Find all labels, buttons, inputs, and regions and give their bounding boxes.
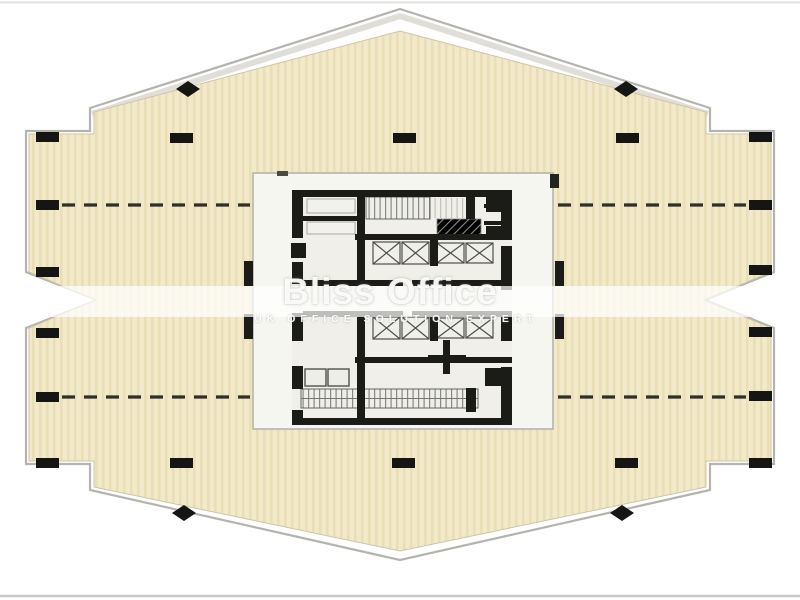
column-marker bbox=[36, 392, 59, 402]
staircase-top bbox=[366, 197, 430, 219]
elevator-shaft bbox=[373, 242, 400, 264]
column-marker bbox=[749, 200, 772, 210]
elevator-shaft bbox=[373, 317, 400, 339]
elevator-shaft bbox=[466, 243, 493, 263]
floorplan-drawing bbox=[0, 0, 800, 600]
column-marker bbox=[393, 133, 416, 143]
core-tick bbox=[550, 174, 559, 188]
elevator-shaft bbox=[466, 318, 493, 338]
elevator-shaft bbox=[402, 317, 429, 339]
column-marker bbox=[170, 458, 193, 468]
staircase-top-extension bbox=[432, 198, 466, 218]
column-marker bbox=[615, 458, 638, 468]
column-marker bbox=[36, 328, 59, 338]
column-marker bbox=[749, 327, 772, 337]
column-marker bbox=[749, 391, 772, 401]
watermark-band bbox=[0, 286, 800, 317]
column-marker bbox=[749, 265, 772, 275]
column-marker bbox=[616, 133, 639, 143]
column-marker bbox=[170, 133, 193, 143]
column-marker bbox=[36, 267, 59, 277]
column-marker bbox=[749, 458, 772, 468]
elevator-shaft bbox=[437, 318, 464, 338]
column-marker bbox=[36, 132, 59, 142]
floorplan-image: Bliss Office UK OFFICE SOLUTION EXPERT bbox=[0, 0, 800, 600]
core-tick bbox=[277, 171, 288, 176]
service-room-hatched bbox=[437, 219, 481, 235]
column-marker bbox=[392, 458, 415, 468]
elevator-shaft bbox=[402, 242, 429, 264]
column-marker bbox=[36, 458, 59, 468]
column-marker bbox=[36, 200, 59, 210]
elevator-shaft bbox=[437, 243, 464, 263]
column-marker bbox=[749, 132, 772, 142]
